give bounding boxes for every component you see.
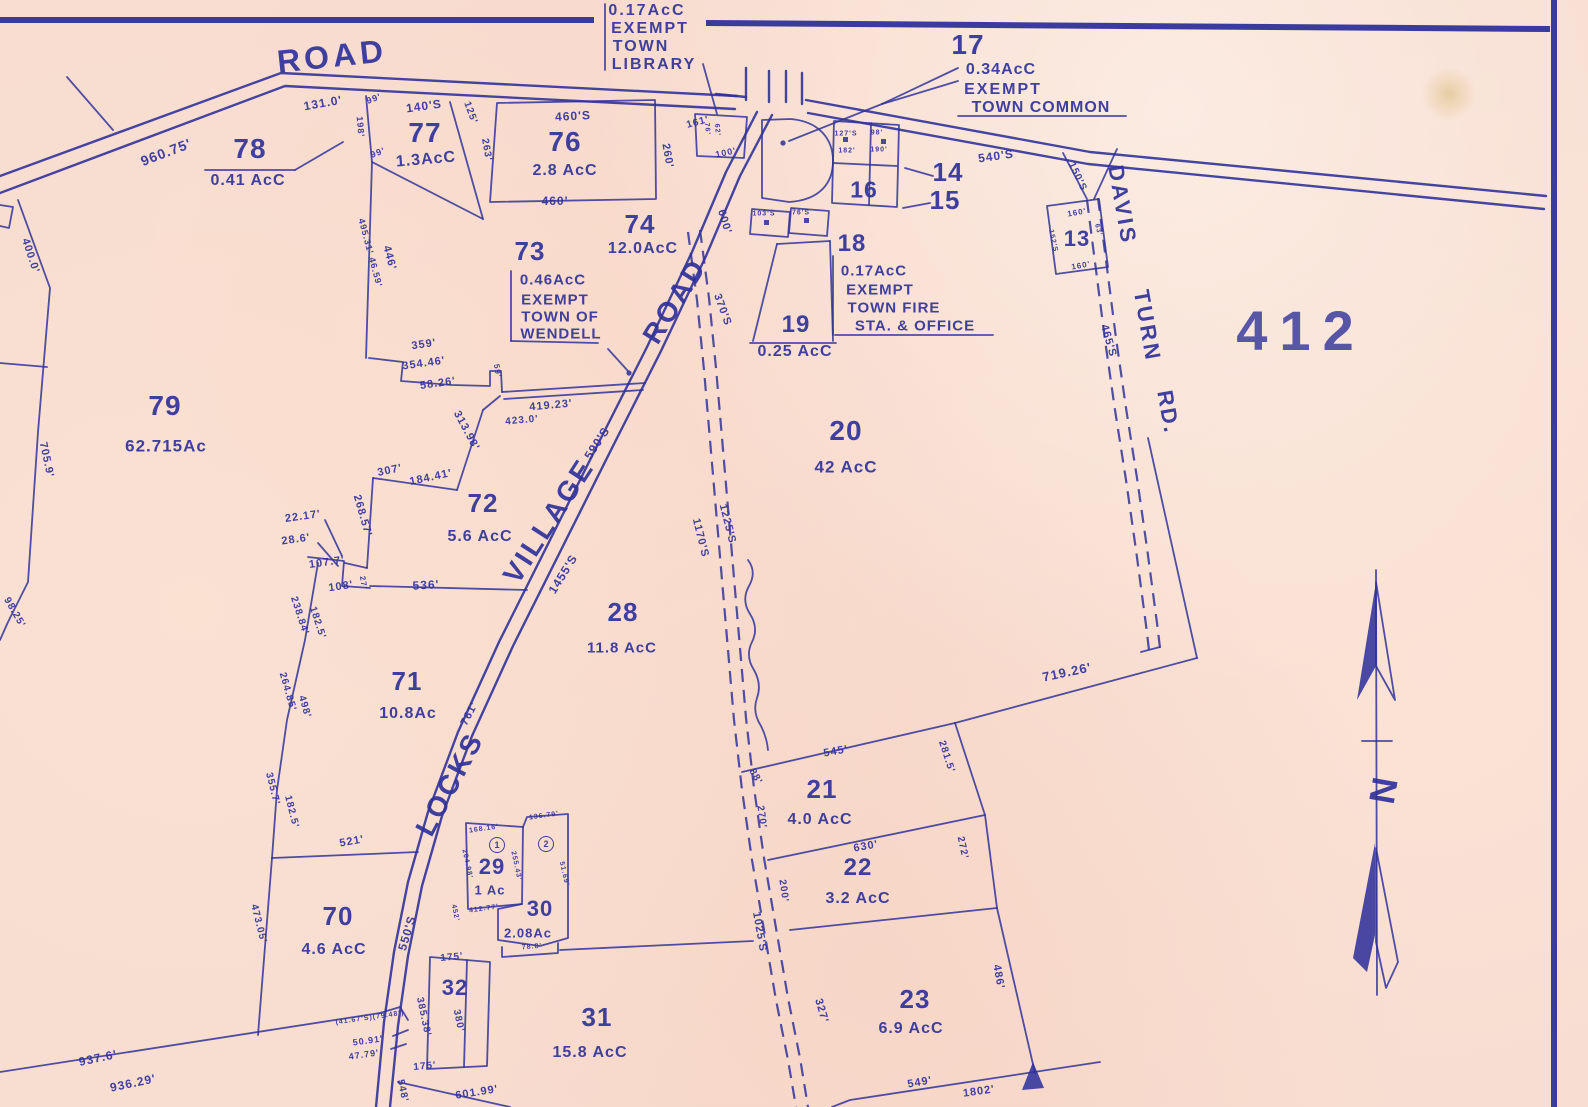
parcel-21-number: 21 bbox=[807, 776, 838, 802]
parcel-19-acreage: 0.25 AcC bbox=[758, 344, 833, 360]
parcel-71-number: 71 bbox=[392, 668, 423, 694]
dim: 59' bbox=[492, 364, 502, 379]
dim: 182' bbox=[838, 148, 855, 155]
common-note: EXEMPT bbox=[964, 82, 1042, 98]
dim: 536' bbox=[412, 578, 439, 591]
parcel-15-number: 15 bbox=[930, 187, 961, 213]
parcel-70-acreage: 4.6 AcC bbox=[301, 942, 366, 958]
dim: 76'S bbox=[792, 210, 810, 217]
dim: 127'S bbox=[834, 131, 857, 138]
parcel-72-number: 72 bbox=[468, 490, 499, 516]
parcel-22-number: 22 bbox=[844, 856, 873, 880]
parcel-74-acreage: 12.0AcC bbox=[608, 241, 678, 257]
road-davis-turn bbox=[1063, 149, 1160, 652]
dim: 198' bbox=[355, 116, 366, 138]
parcel-77-number: 77 bbox=[408, 119, 441, 147]
parcel-79-number: 79 bbox=[148, 392, 181, 420]
parcel-30-acreage: 2.08Ac bbox=[504, 927, 552, 940]
parcel-74-number: 74 bbox=[625, 211, 656, 237]
parcel-79-acreage: 62.715Ac bbox=[125, 438, 207, 455]
road-name-davis: RD. bbox=[1153, 388, 1182, 435]
parcel-76-acreage: 2.8 AcC bbox=[532, 163, 597, 179]
dim: 270' bbox=[754, 805, 767, 829]
lot-marker-2: 2 bbox=[538, 836, 554, 852]
dim: 62' bbox=[713, 123, 721, 136]
parcel-76-number: 76 bbox=[548, 128, 581, 156]
dim: 460' bbox=[542, 195, 569, 207]
dim: 27' bbox=[358, 576, 368, 591]
parcel-32-number: 32 bbox=[442, 977, 468, 999]
map-linework bbox=[0, 0, 1588, 1107]
parcel-23-number: 23 bbox=[900, 986, 931, 1012]
wendell-note: WENDELL bbox=[520, 327, 601, 342]
parcel-16-number: 16 bbox=[850, 179, 878, 202]
firestation-note-acreage: 0.17AcC bbox=[841, 264, 907, 279]
parcel-70-number: 70 bbox=[323, 903, 354, 929]
lot-marker-1: 1 bbox=[489, 837, 505, 853]
stream bbox=[745, 560, 768, 750]
dim: 200' bbox=[776, 879, 789, 903]
dim: 98' bbox=[871, 130, 883, 137]
road-discontinued-dashed bbox=[688, 230, 808, 1107]
parcel-13-number: 13 bbox=[1064, 228, 1090, 250]
dim: 190' bbox=[870, 147, 887, 154]
library-note: TOWN bbox=[613, 39, 670, 55]
firestation-note: STA. & OFFICE bbox=[855, 319, 975, 334]
library-note: LIBRARY bbox=[612, 57, 697, 73]
parcel-31-acreage: 15.8 AcC bbox=[553, 1045, 628, 1061]
parcel-boundaries bbox=[0, 4, 1197, 1107]
parcel-72-acreage: 5.6 AcC bbox=[447, 529, 512, 545]
parcel-20-acreage: 42 AcC bbox=[814, 459, 877, 476]
parcel-29-acreage: 1 Ac bbox=[475, 884, 506, 897]
map-border bbox=[0, 0, 1554, 1107]
parcel-30-number: 30 bbox=[527, 898, 553, 920]
parcel-18-number: 18 bbox=[838, 232, 867, 256]
library-note-acreage: 0.17AcC bbox=[608, 3, 685, 19]
common-note: TOWN COMMON bbox=[972, 100, 1111, 116]
library-note: EXEMPT bbox=[611, 21, 689, 37]
firestation-note: TOWN FIRE bbox=[848, 301, 941, 316]
parcel-73-number: 73 bbox=[515, 238, 546, 264]
dim: 460'S bbox=[555, 109, 591, 123]
tax-map-sheet: ROAD960.75'131.0'99'198'99'140'S125'771.… bbox=[0, 0, 1588, 1107]
parcel-23-acreage: 6.9 AcC bbox=[878, 1021, 943, 1037]
wendell-note-acreage: 0.46AcC bbox=[520, 273, 586, 288]
parcel-71-acreage: 10.8Ac bbox=[379, 706, 437, 722]
parcel-31-number: 31 bbox=[582, 1004, 613, 1030]
parcel-14-number: 14 bbox=[933, 159, 964, 185]
parcel-28-number: 28 bbox=[608, 599, 639, 625]
dim: 76' bbox=[703, 122, 711, 135]
parcel-29-number: 29 bbox=[479, 856, 505, 878]
parcel-21-acreage: 4.0 AcC bbox=[787, 812, 852, 828]
parcel-17-number: 17 bbox=[951, 31, 984, 59]
parcel-28-acreage: 11.8 AcC bbox=[587, 641, 657, 656]
parcel-22-acreage: 3.2 AcC bbox=[825, 891, 890, 907]
dim: 103'S bbox=[752, 211, 775, 218]
wendell-note: TOWN OF bbox=[521, 310, 599, 325]
sheet-number: 412 bbox=[1236, 303, 1365, 359]
parcel-19-number: 19 bbox=[782, 313, 811, 337]
parcel-20-number: 20 bbox=[829, 417, 862, 445]
dim: 175' bbox=[440, 952, 464, 964]
parcel-78-number: 78 bbox=[233, 135, 266, 163]
common-note-acreage: 0.34AcC bbox=[966, 62, 1036, 78]
firestation-note: EXEMPT bbox=[846, 283, 914, 298]
dim: 175' bbox=[413, 1061, 437, 1073]
wendell-note: EXEMPT bbox=[521, 293, 589, 308]
parcel-78-acreage: 0.41 AcC bbox=[211, 173, 286, 189]
